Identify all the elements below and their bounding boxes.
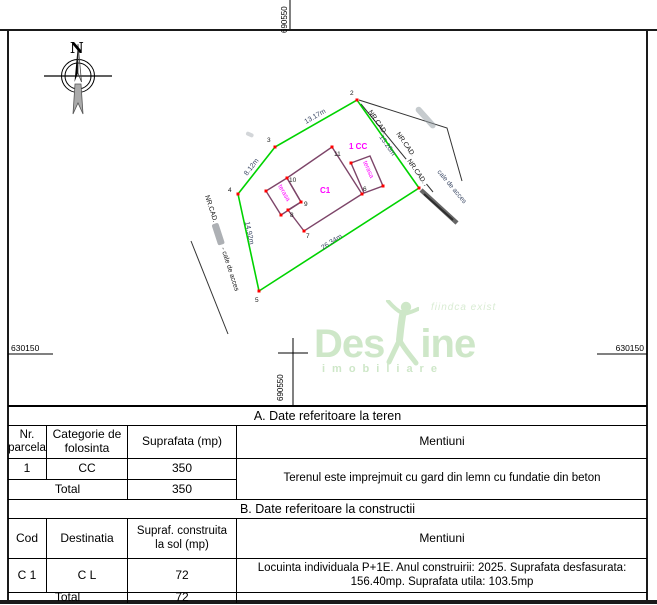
vertex-labels: 1 2 3 4 5 6 7 8 9 10 11 [228,90,426,304]
table-b-total-label: Total [8,592,128,603]
grid-label-bottom: 690550 [276,374,285,401]
building-label: C1 [320,186,331,195]
table-b-header-suprafata: Supraf. construita la sol (mp) [128,519,237,558]
table-b-cell-suprafata: 72 [128,559,237,592]
table-a-total-suprafata: 350 [128,479,237,499]
table-b-cell-mentiuni: Locuinta individuala P+1E. Anul construi… [237,559,647,592]
table-a-header-nr-parcela: Nr. parcela [8,426,47,458]
dimension-labels: 13.17m 8.12m 14.92m 26.34m 15.26m [243,108,397,252]
vertex-label-6: 6 [363,186,367,193]
cadastral-plan-page: { "compass": { "north_label": "N" }, "gr… [0,0,657,605]
redacted-number-right [414,106,437,130]
cadastral-data-tables: A. Date referitoare la teren Nr. parcela… [8,405,647,603]
vertex-label-2: 2 [350,90,354,97]
terrace-left-label: terasa [276,184,291,203]
table-a-cell-suprafata: 350 [128,459,237,479]
vertex-label-5: 5 [255,297,259,304]
table-a-body: 1 CC 350 Terenul este imprejmuit cu gard… [8,458,647,499]
dimension-edge-1-2: 15.26m [377,134,396,157]
vertex-label-4: 4 [228,187,232,194]
table-a-header-suprafata: Suprafata (mp) [128,426,237,458]
table-b-title-row: B. Date referitoare la constructii [8,499,647,518]
parcel-boundary [238,100,419,291]
compass-north-label: N [70,39,84,57]
table-b-total-suprafata: 72 [128,592,237,603]
table-b-cell-destinatia: C L [47,559,128,592]
table-b-header-mentiuni: Mentiuni [237,519,647,558]
dimension-edge-4-5: 14.92m [243,221,255,245]
redacted-number-left [211,223,224,246]
table-b-title: B. Date referitoare la constructii [8,500,647,518]
access-road-label-right: cale de acces [435,169,467,206]
vertex-label-9: 9 [304,201,308,208]
table-b-body: C 1 C L 72 Locuinta individuala P+1E. An… [8,558,647,603]
table-b-header-row: Cod Destinatia Supraf. construita la sol… [8,518,647,558]
vertex-label-3: 3 [267,137,271,144]
grid-label-top: 690550 [280,6,289,33]
access-road-label-left: - cale de acces [219,246,240,292]
table-a-cell-mentiuni: Terenul este imprejmuit cu gard din lemn… [237,459,647,499]
table-a-header-categorie: Categorie de folosinta [47,426,128,458]
cadastral-label-left: NR.CAD. [203,194,218,223]
compass-needle-south [73,84,83,114]
table-a-title: A. Date referitoare la teren [8,407,647,425]
table-b-cell-cod: C 1 [8,559,47,592]
vertex-label-10: 10 [289,177,297,184]
cadastral-label-1: NR.CAD. [366,109,388,136]
road-hatch-band-core [424,194,453,220]
cadastral-labels: NR.CAD. NR.CAD. NR.CAD. NR.CAD. - cale d… [203,109,468,293]
dimension-edge-5-1: 26.34m [320,233,344,252]
redacted-mark-upper-left [245,131,254,138]
table-a-header-mentiuni: Mentiuni [237,426,647,458]
north-compass: N [44,39,112,114]
vertex-markers [237,99,421,293]
coordinate-grid-marks: 690550 690550 630150 630150 [8,0,647,405]
table-a-header-row: Nr. parcela Categorie de folosinta Supra… [8,425,647,458]
vertex-label-7: 7 [306,233,310,240]
cadastral-label-2: NR.CAD. [394,131,416,158]
table-a-total-label: Total [8,479,128,499]
parcel-use-label: 1 CC [349,142,367,151]
vertex-label-8: 8 [290,212,294,219]
table-b-total-mentiuni-empty [237,592,647,603]
grid-label-left: 630150 [11,343,40,353]
vertex-label-11: 11 [334,151,341,158]
site-plan-drawing: N 690550 690550 630150 630150 [0,0,657,405]
table-a-cell-categorie: CC [47,459,128,479]
table-a-title-row: A. Date referitoare la teren [8,407,647,425]
table-a-cell-nr: 1 [8,459,47,479]
grid-label-right: 630150 [616,343,645,353]
table-b-header-destinatia: Destinatia [47,519,128,558]
table-b-header-cod: Cod [8,519,47,558]
